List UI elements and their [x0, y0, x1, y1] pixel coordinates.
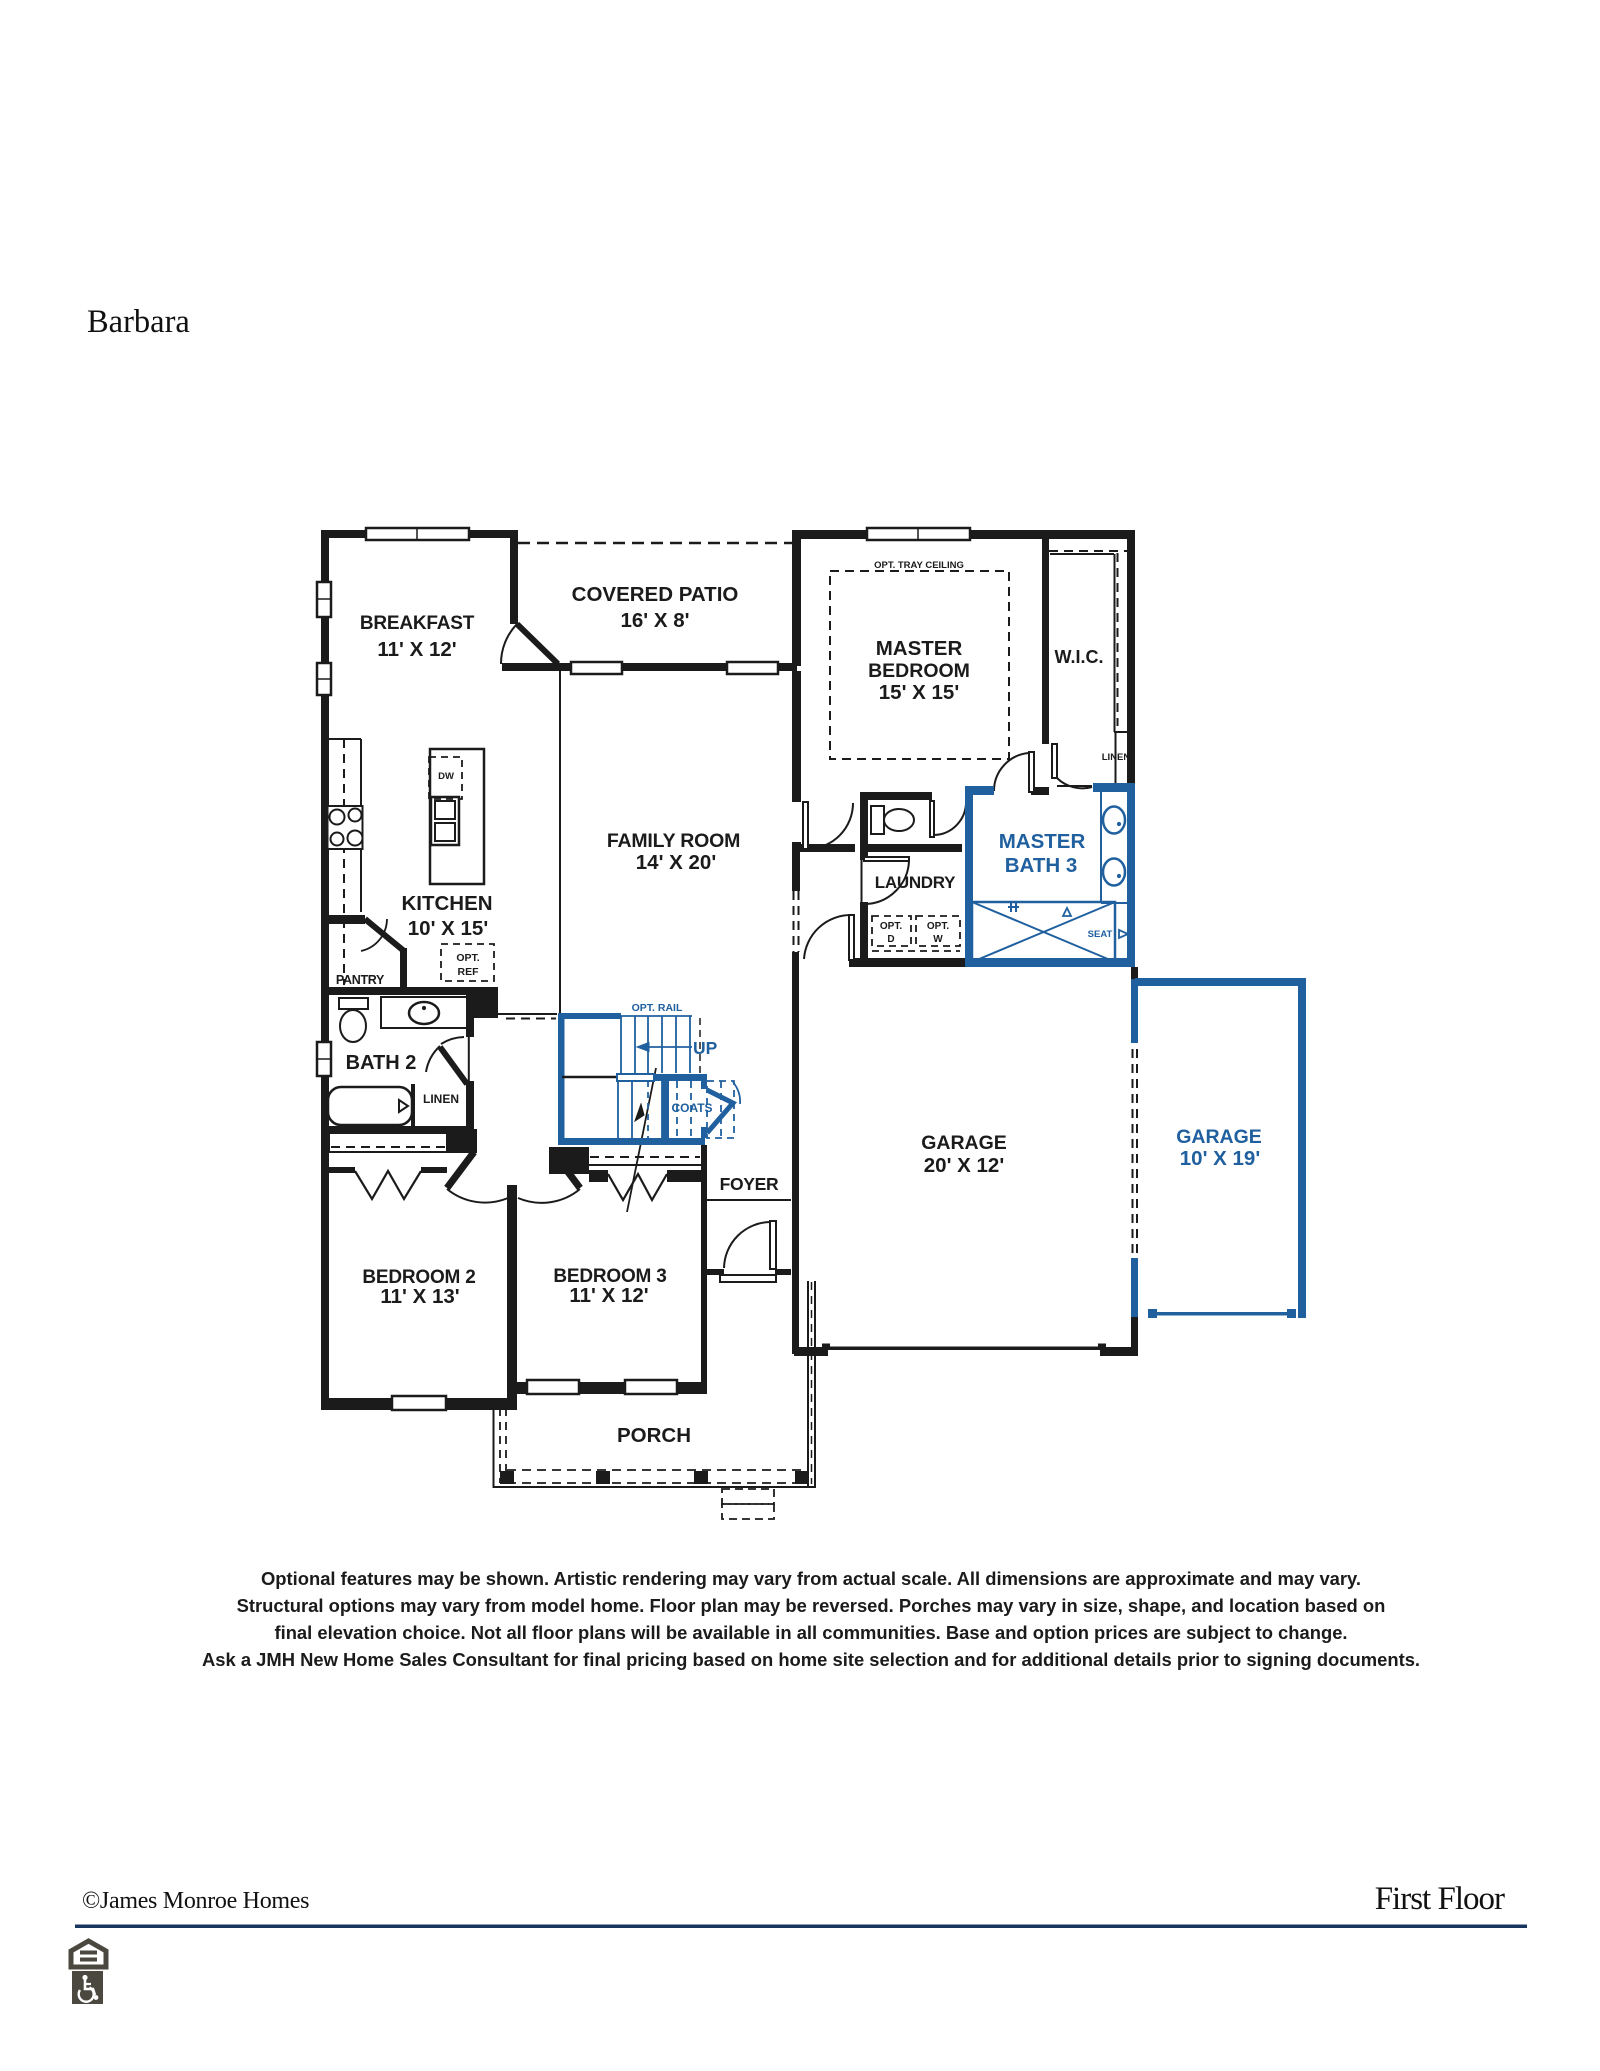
svg-text:15' X 15': 15' X 15': [879, 681, 959, 704]
svg-text:W.I.C.: W.I.C.: [1055, 647, 1104, 667]
svg-text:First Floor: First Floor: [1375, 1881, 1505, 1917]
svg-text:©James Monroe Homes: ©James Monroe Homes: [82, 1888, 309, 1914]
svg-text:Ask a JMH New Home Sales Consu: Ask a JMH New Home Sales Consultant for …: [202, 1649, 1420, 1670]
svg-text:BATH 3: BATH 3: [1005, 854, 1078, 877]
svg-text:FAMILY ROOM: FAMILY ROOM: [607, 830, 740, 852]
svg-text:BATH 2: BATH 2: [346, 1052, 417, 1074]
svg-text:10' X 15': 10' X 15': [408, 917, 488, 940]
svg-text:D: D: [887, 934, 894, 945]
svg-text:Optional features may be shown: Optional features may be shown. Artistic…: [261, 1568, 1361, 1589]
svg-text:FOYER: FOYER: [720, 1174, 779, 1194]
svg-text:PORCH: PORCH: [617, 1424, 691, 1447]
svg-text:BEDROOM: BEDROOM: [868, 660, 970, 682]
svg-text:KITCHEN: KITCHEN: [401, 892, 492, 915]
svg-text:REF: REF: [458, 966, 480, 978]
svg-text:MASTER: MASTER: [876, 637, 963, 660]
svg-text:SEAT: SEAT: [1088, 929, 1113, 940]
svg-text:11' X 12': 11' X 12': [569, 1284, 648, 1307]
svg-text:final elevation choice. Not al: final elevation choice. Not all floor pl…: [274, 1622, 1347, 1643]
svg-text:11' X 12': 11' X 12': [377, 638, 456, 661]
svg-text:COVERED PATIO: COVERED PATIO: [572, 583, 739, 606]
svg-text:Barbara: Barbara: [87, 304, 190, 340]
svg-text:MASTER: MASTER: [999, 830, 1086, 853]
svg-text:OPT.: OPT.: [456, 952, 479, 964]
svg-text:LINEN: LINEN: [423, 1092, 459, 1106]
svg-text:11' X 13': 11' X 13': [380, 1285, 459, 1308]
svg-text:14' X 20': 14' X 20': [636, 851, 716, 874]
svg-text:LAUNDRY: LAUNDRY: [875, 873, 956, 892]
svg-text:OPT.: OPT.: [927, 921, 949, 932]
svg-text:COATS: COATS: [671, 1101, 712, 1115]
svg-text:UP: UP: [693, 1038, 718, 1058]
svg-text:LINEN: LINEN: [1102, 752, 1131, 763]
svg-text:OPT. TRAY CEILING: OPT. TRAY CEILING: [874, 560, 964, 571]
svg-text:W: W: [933, 934, 943, 945]
svg-text:10' X 19': 10' X 19': [1180, 1147, 1260, 1170]
svg-text:BREAKFAST: BREAKFAST: [360, 613, 475, 634]
svg-text:OPT. RAIL: OPT. RAIL: [632, 1002, 683, 1014]
svg-text:DW: DW: [438, 771, 454, 782]
svg-text:16' X 8': 16' X 8': [620, 609, 689, 632]
svg-text:PANTRY: PANTRY: [336, 973, 385, 987]
svg-text:20' X 12': 20' X 12': [924, 1154, 1004, 1177]
svg-text:GARAGE: GARAGE: [921, 1132, 1007, 1154]
svg-text:GARAGE: GARAGE: [1176, 1126, 1262, 1148]
svg-text:OPT.: OPT.: [880, 921, 902, 932]
svg-text:Structural options may vary fr: Structural options may vary from model h…: [237, 1595, 1386, 1616]
